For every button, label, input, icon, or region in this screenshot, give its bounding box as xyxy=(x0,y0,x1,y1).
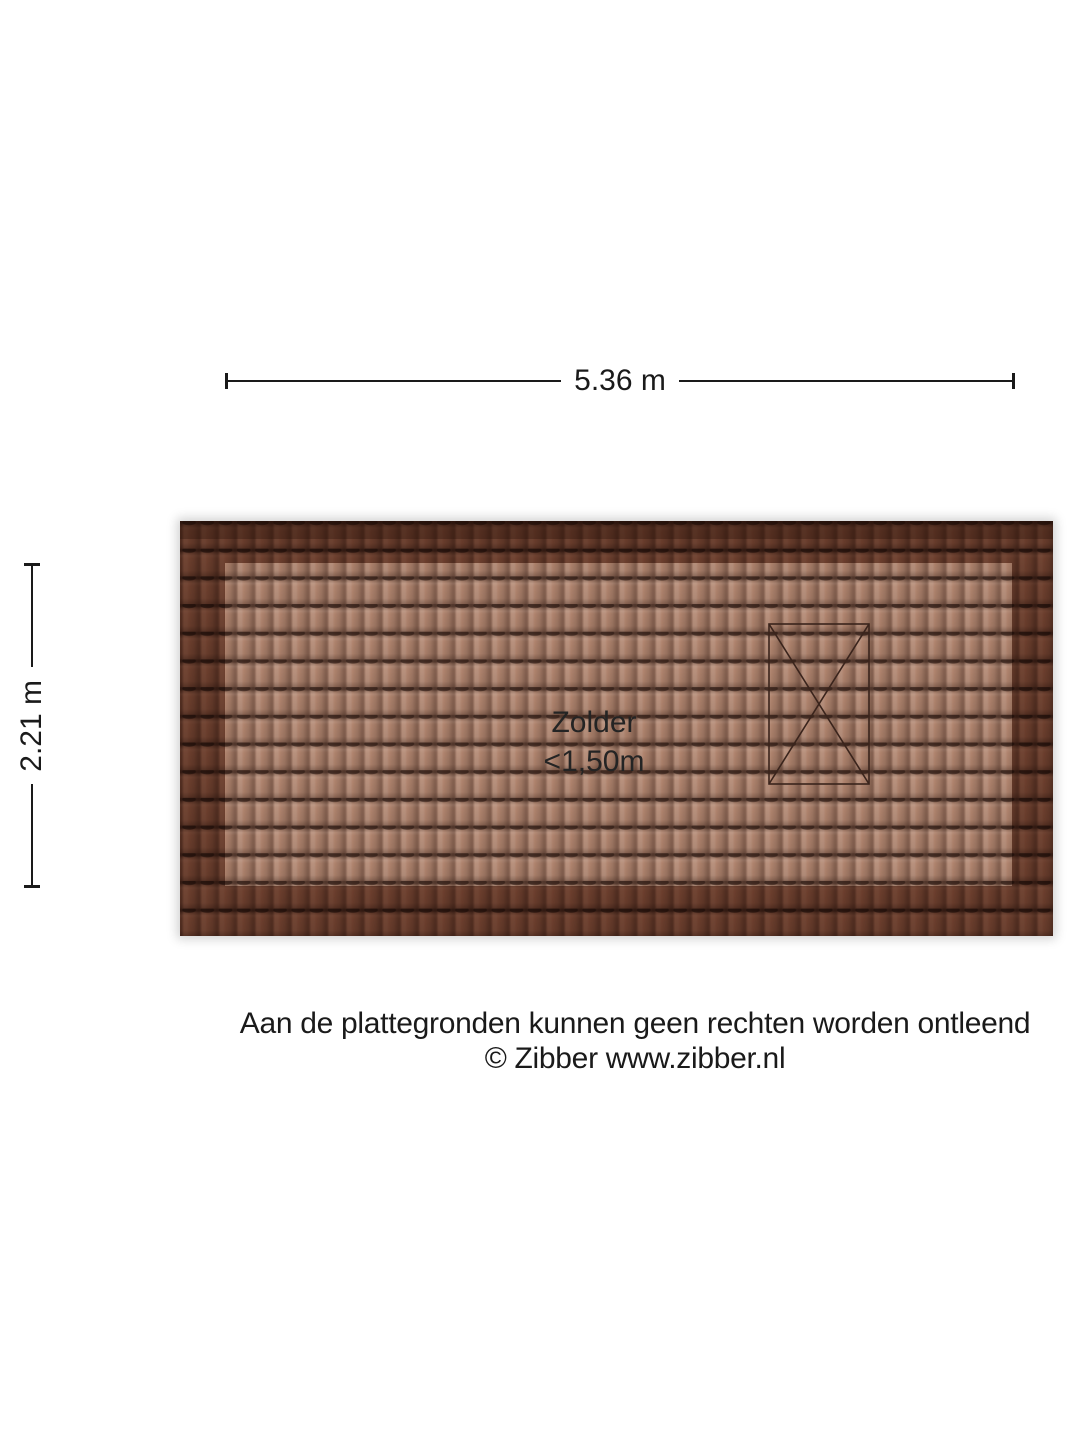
room-label: Zolder <1,50m xyxy=(544,703,645,781)
width-dimension: 5.36 m xyxy=(225,365,1015,397)
disclaimer-line2: © Zibber www.zibber.nl xyxy=(190,1041,1080,1076)
roof-ridge xyxy=(180,521,1053,539)
dimension-line-bottom-segment xyxy=(31,784,33,885)
height-dimension: 2.21 m xyxy=(10,563,54,888)
room-height-note: <1,50m xyxy=(544,742,645,781)
width-dimension-label: 5.36 m xyxy=(561,365,679,397)
dimension-line-left-segment xyxy=(228,380,561,382)
disclaimer-line1: Aan de plattegronden kunnen geen rechten… xyxy=(190,1006,1080,1041)
roof-plan: Zolder <1,50m xyxy=(180,521,1053,936)
room-name: Zolder xyxy=(544,703,645,742)
height-dimension-label: 2.21 m xyxy=(16,667,48,785)
roof-window-icon xyxy=(768,623,870,785)
disclaimer: Aan de plattegronden kunnen geen rechten… xyxy=(190,1006,1080,1076)
dimension-tick-right xyxy=(1012,373,1015,389)
dimension-line-top-segment xyxy=(31,566,33,667)
dimension-tick-bottom xyxy=(24,885,40,888)
dimension-line-right-segment xyxy=(679,380,1012,382)
floorplan-canvas: 5.36 m 2.21 m Zolder <1,50m Aan de platt… xyxy=(0,0,1080,1440)
